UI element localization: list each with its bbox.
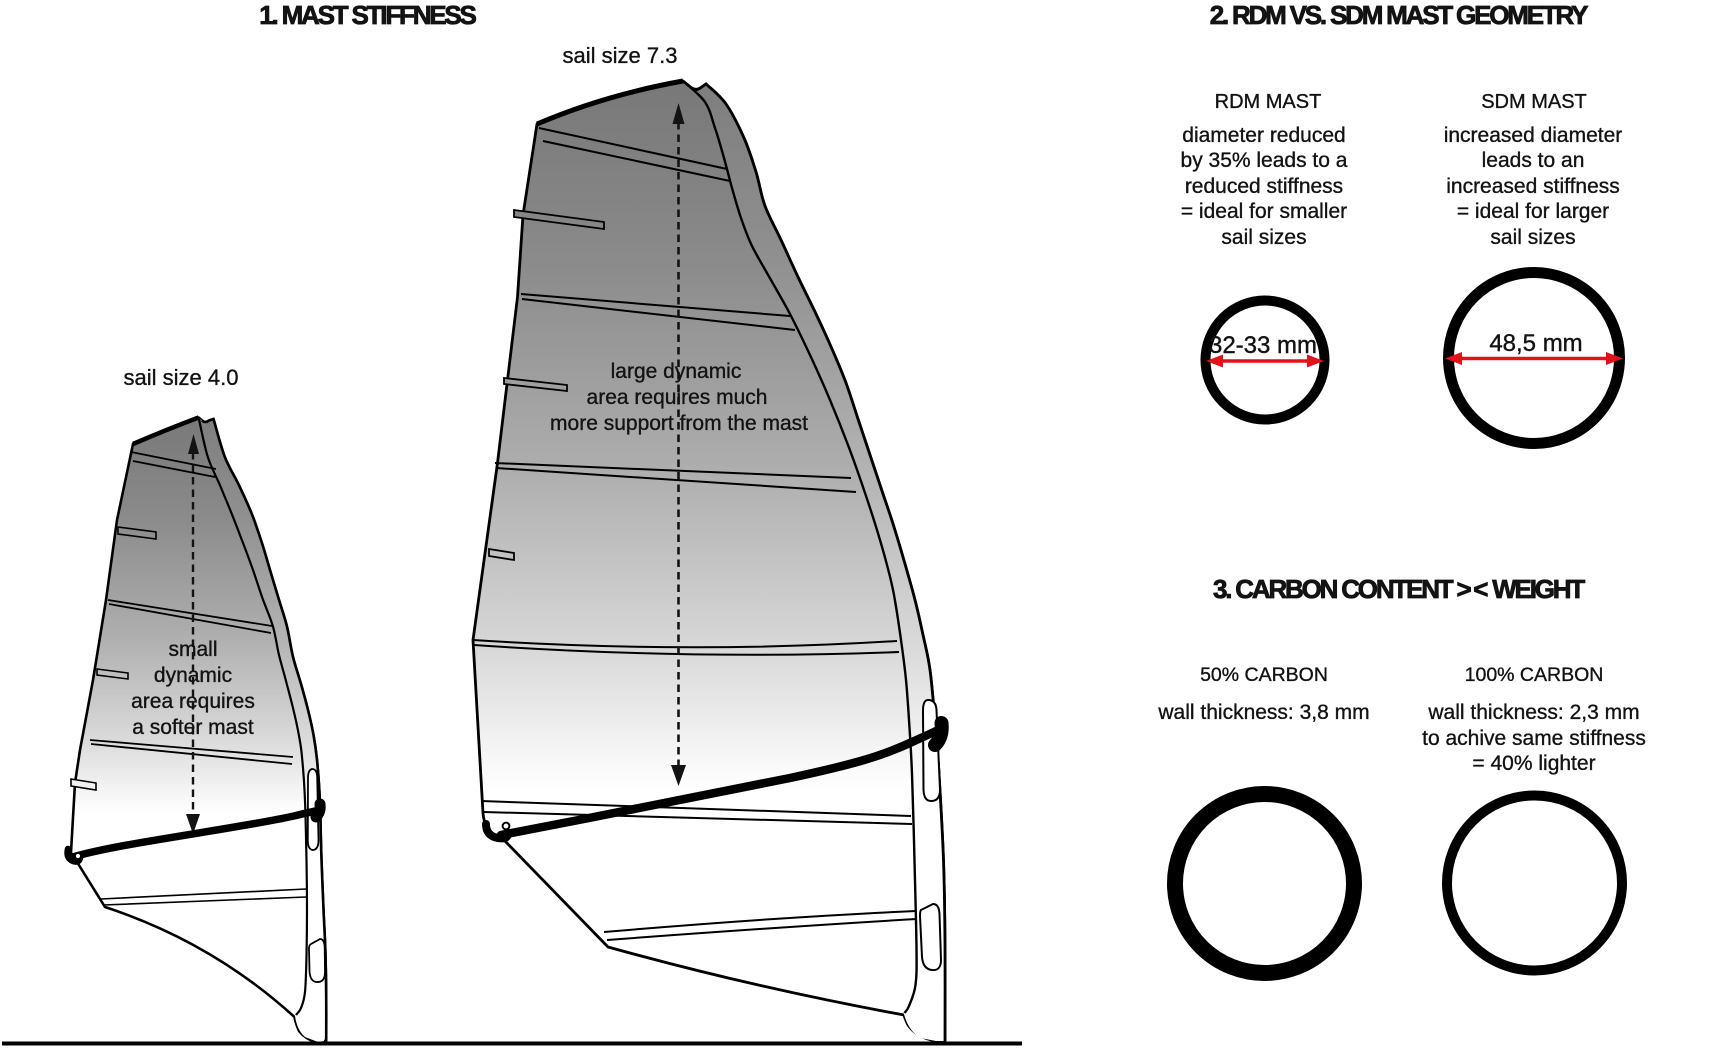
svg-text:SDM MAST: SDM MAST xyxy=(1481,91,1587,113)
svg-text:sail sizes: sail sizes xyxy=(1221,226,1306,249)
svg-text:area requires: area requires xyxy=(131,690,255,713)
svg-text:a softer mast: a softer mast xyxy=(132,716,254,739)
svg-text:wall thickness: 2,3 mm: wall thickness: 2,3 mm xyxy=(1427,701,1639,724)
svg-text:50% CARBON: 50% CARBON xyxy=(1200,664,1328,686)
svg-text:RDM MAST: RDM MAST xyxy=(1215,91,1322,113)
svg-text:more support from the mast: more support from the mast xyxy=(550,412,808,435)
svg-text:small: small xyxy=(168,638,217,661)
svg-text:sail size 4.0: sail size 4.0 xyxy=(124,365,239,390)
svg-text:leads to an: leads to an xyxy=(1482,149,1585,172)
svg-text:increased diameter: increased diameter xyxy=(1444,124,1623,147)
svg-text:sail size 7.3: sail size 7.3 xyxy=(563,43,678,68)
svg-text:wall thickness: 3,8 mm: wall thickness: 3,8 mm xyxy=(1157,701,1369,724)
svg-text:increased stiffness: increased stiffness xyxy=(1446,175,1620,198)
svg-text:to achive same stiffness: to achive same stiffness xyxy=(1422,727,1646,750)
svg-text:sail sizes: sail sizes xyxy=(1490,226,1575,249)
svg-text:= ideal for smaller: = ideal for smaller xyxy=(1181,200,1347,223)
svg-text:3. CARBON CONTENT >< WEIGHT: 3. CARBON CONTENT >< WEIGHT xyxy=(1213,574,1585,604)
svg-text:= ideal for larger: = ideal for larger xyxy=(1457,200,1609,223)
svg-text:2. RDM VS. SDM MAST GEOMETRY: 2. RDM VS. SDM MAST GEOMETRY xyxy=(1210,0,1588,30)
svg-text:diameter reduced: diameter reduced xyxy=(1182,124,1345,147)
svg-text:48,5 mm: 48,5 mm xyxy=(1489,330,1582,357)
svg-text:by 35% leads to a: by 35% leads to a xyxy=(1181,149,1348,172)
svg-text:100% CARBON: 100% CARBON xyxy=(1465,664,1604,686)
svg-text:1. MAST STIFFNESS: 1. MAST STIFFNESS xyxy=(259,0,476,30)
svg-text:large dynamic: large dynamic xyxy=(611,360,742,383)
svg-text:area requires much: area requires much xyxy=(587,386,768,409)
svg-text:= 40% lighter: = 40% lighter xyxy=(1472,752,1595,775)
svg-text:dynamic: dynamic xyxy=(154,664,232,687)
svg-text:reduced stiffness: reduced stiffness xyxy=(1185,175,1343,198)
svg-text:32-33 mm: 32-33 mm xyxy=(1209,332,1317,359)
